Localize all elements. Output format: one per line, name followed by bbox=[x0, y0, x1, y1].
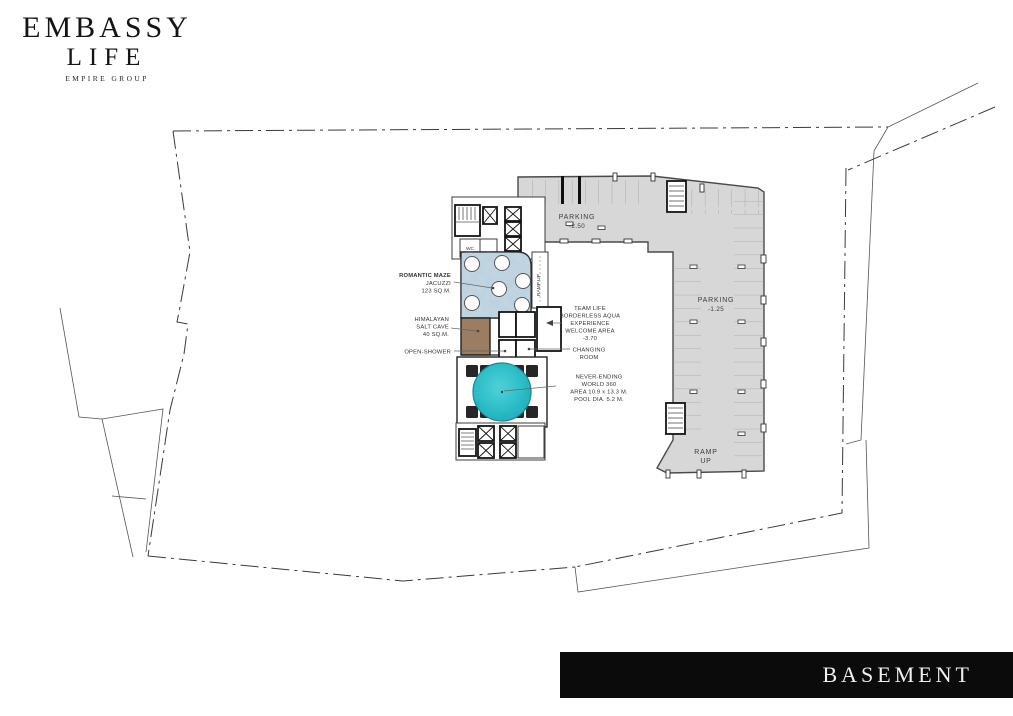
jacuzzi-label-line2: JACUZZI bbox=[426, 281, 451, 287]
welcome-label-line3: EXPERIENCE bbox=[570, 321, 609, 327]
boundary-bottom bbox=[148, 556, 575, 581]
floorplan-canvas: PARKING -2.50 PARKING -1.25 RAMP UP bbox=[0, 0, 1013, 716]
pool-label-line1: NEVER-ENDING bbox=[576, 375, 623, 381]
road-left-outer bbox=[60, 308, 133, 557]
elevator-bank-right bbox=[505, 207, 521, 251]
boundary-topright-diagonal bbox=[848, 107, 995, 170]
service-room bbox=[518, 426, 544, 458]
salt-cave-label-line3: 40 SQ.M. bbox=[423, 332, 449, 338]
wc-label: WC bbox=[466, 246, 475, 252]
welcome-label-line2: BORDERLESS AQUA bbox=[560, 314, 620, 320]
boundary-left bbox=[148, 131, 190, 556]
parking-right-title: PARKING bbox=[698, 297, 735, 304]
floor-title-bar: BASEMENT bbox=[560, 652, 1013, 698]
pool-center-dot bbox=[501, 391, 503, 393]
amenity-block: WC RAMP UP bbox=[452, 197, 561, 460]
jacuzzi-label-line1: ROMANTIC MAZE bbox=[399, 273, 451, 279]
salt-cave-label-line2: SALT CAVE bbox=[416, 325, 449, 331]
stair-glyph-top bbox=[455, 205, 480, 236]
core-top: WC bbox=[452, 197, 545, 259]
pool-room bbox=[457, 357, 547, 427]
salt-cave-label-line1: HIMALAYAN bbox=[415, 317, 449, 323]
road-topright bbox=[846, 83, 978, 444]
ramp-corridor: RAMP UP bbox=[532, 252, 548, 308]
ramp-up-label-line2: UP bbox=[700, 458, 711, 465]
welcome-label-line5: -3.70 bbox=[583, 336, 597, 342]
welcome-label-line4: WELCOME AREA bbox=[565, 329, 614, 335]
welcome-area bbox=[537, 307, 561, 351]
parking-top-title: PARKING bbox=[559, 214, 596, 221]
stair-glyph-bottom bbox=[459, 429, 476, 456]
pool-label-line3: AREA 10.9 x 13.3 M. bbox=[570, 390, 628, 396]
elevator-shaft-small bbox=[483, 207, 497, 224]
pool-label-line2: WORLD 360 bbox=[582, 382, 617, 388]
changing-label-line2: ROOM bbox=[580, 355, 599, 361]
jacuzzi-label-line3: 123 SQ.M. bbox=[421, 289, 451, 295]
ramp-corridor-label: RAMP UP bbox=[536, 274, 542, 296]
core-bottom bbox=[456, 423, 545, 460]
road-left-wedge bbox=[102, 409, 163, 552]
road-left-crossbar bbox=[112, 496, 146, 499]
pool-label-line4: POOL DIA. 5.2 M. bbox=[574, 397, 624, 403]
parking-stair-bottom-glyph bbox=[666, 403, 685, 434]
salt-cave-room bbox=[461, 318, 490, 355]
parking-stair-top-glyph bbox=[667, 181, 686, 212]
floor-title: BASEMENT bbox=[822, 662, 973, 688]
ramp-up-label-line1: RAMP bbox=[694, 449, 717, 456]
welcome-label-line1: TEAM LIFE bbox=[574, 306, 606, 312]
parking-top-level: -2.50 bbox=[569, 223, 585, 230]
parking-right-level: -1.25 bbox=[708, 306, 724, 313]
boundary-top bbox=[173, 127, 888, 131]
open-shower-label: OPEN-SHOWER bbox=[404, 350, 451, 356]
changing-label-line1: CHANGING bbox=[573, 348, 606, 354]
